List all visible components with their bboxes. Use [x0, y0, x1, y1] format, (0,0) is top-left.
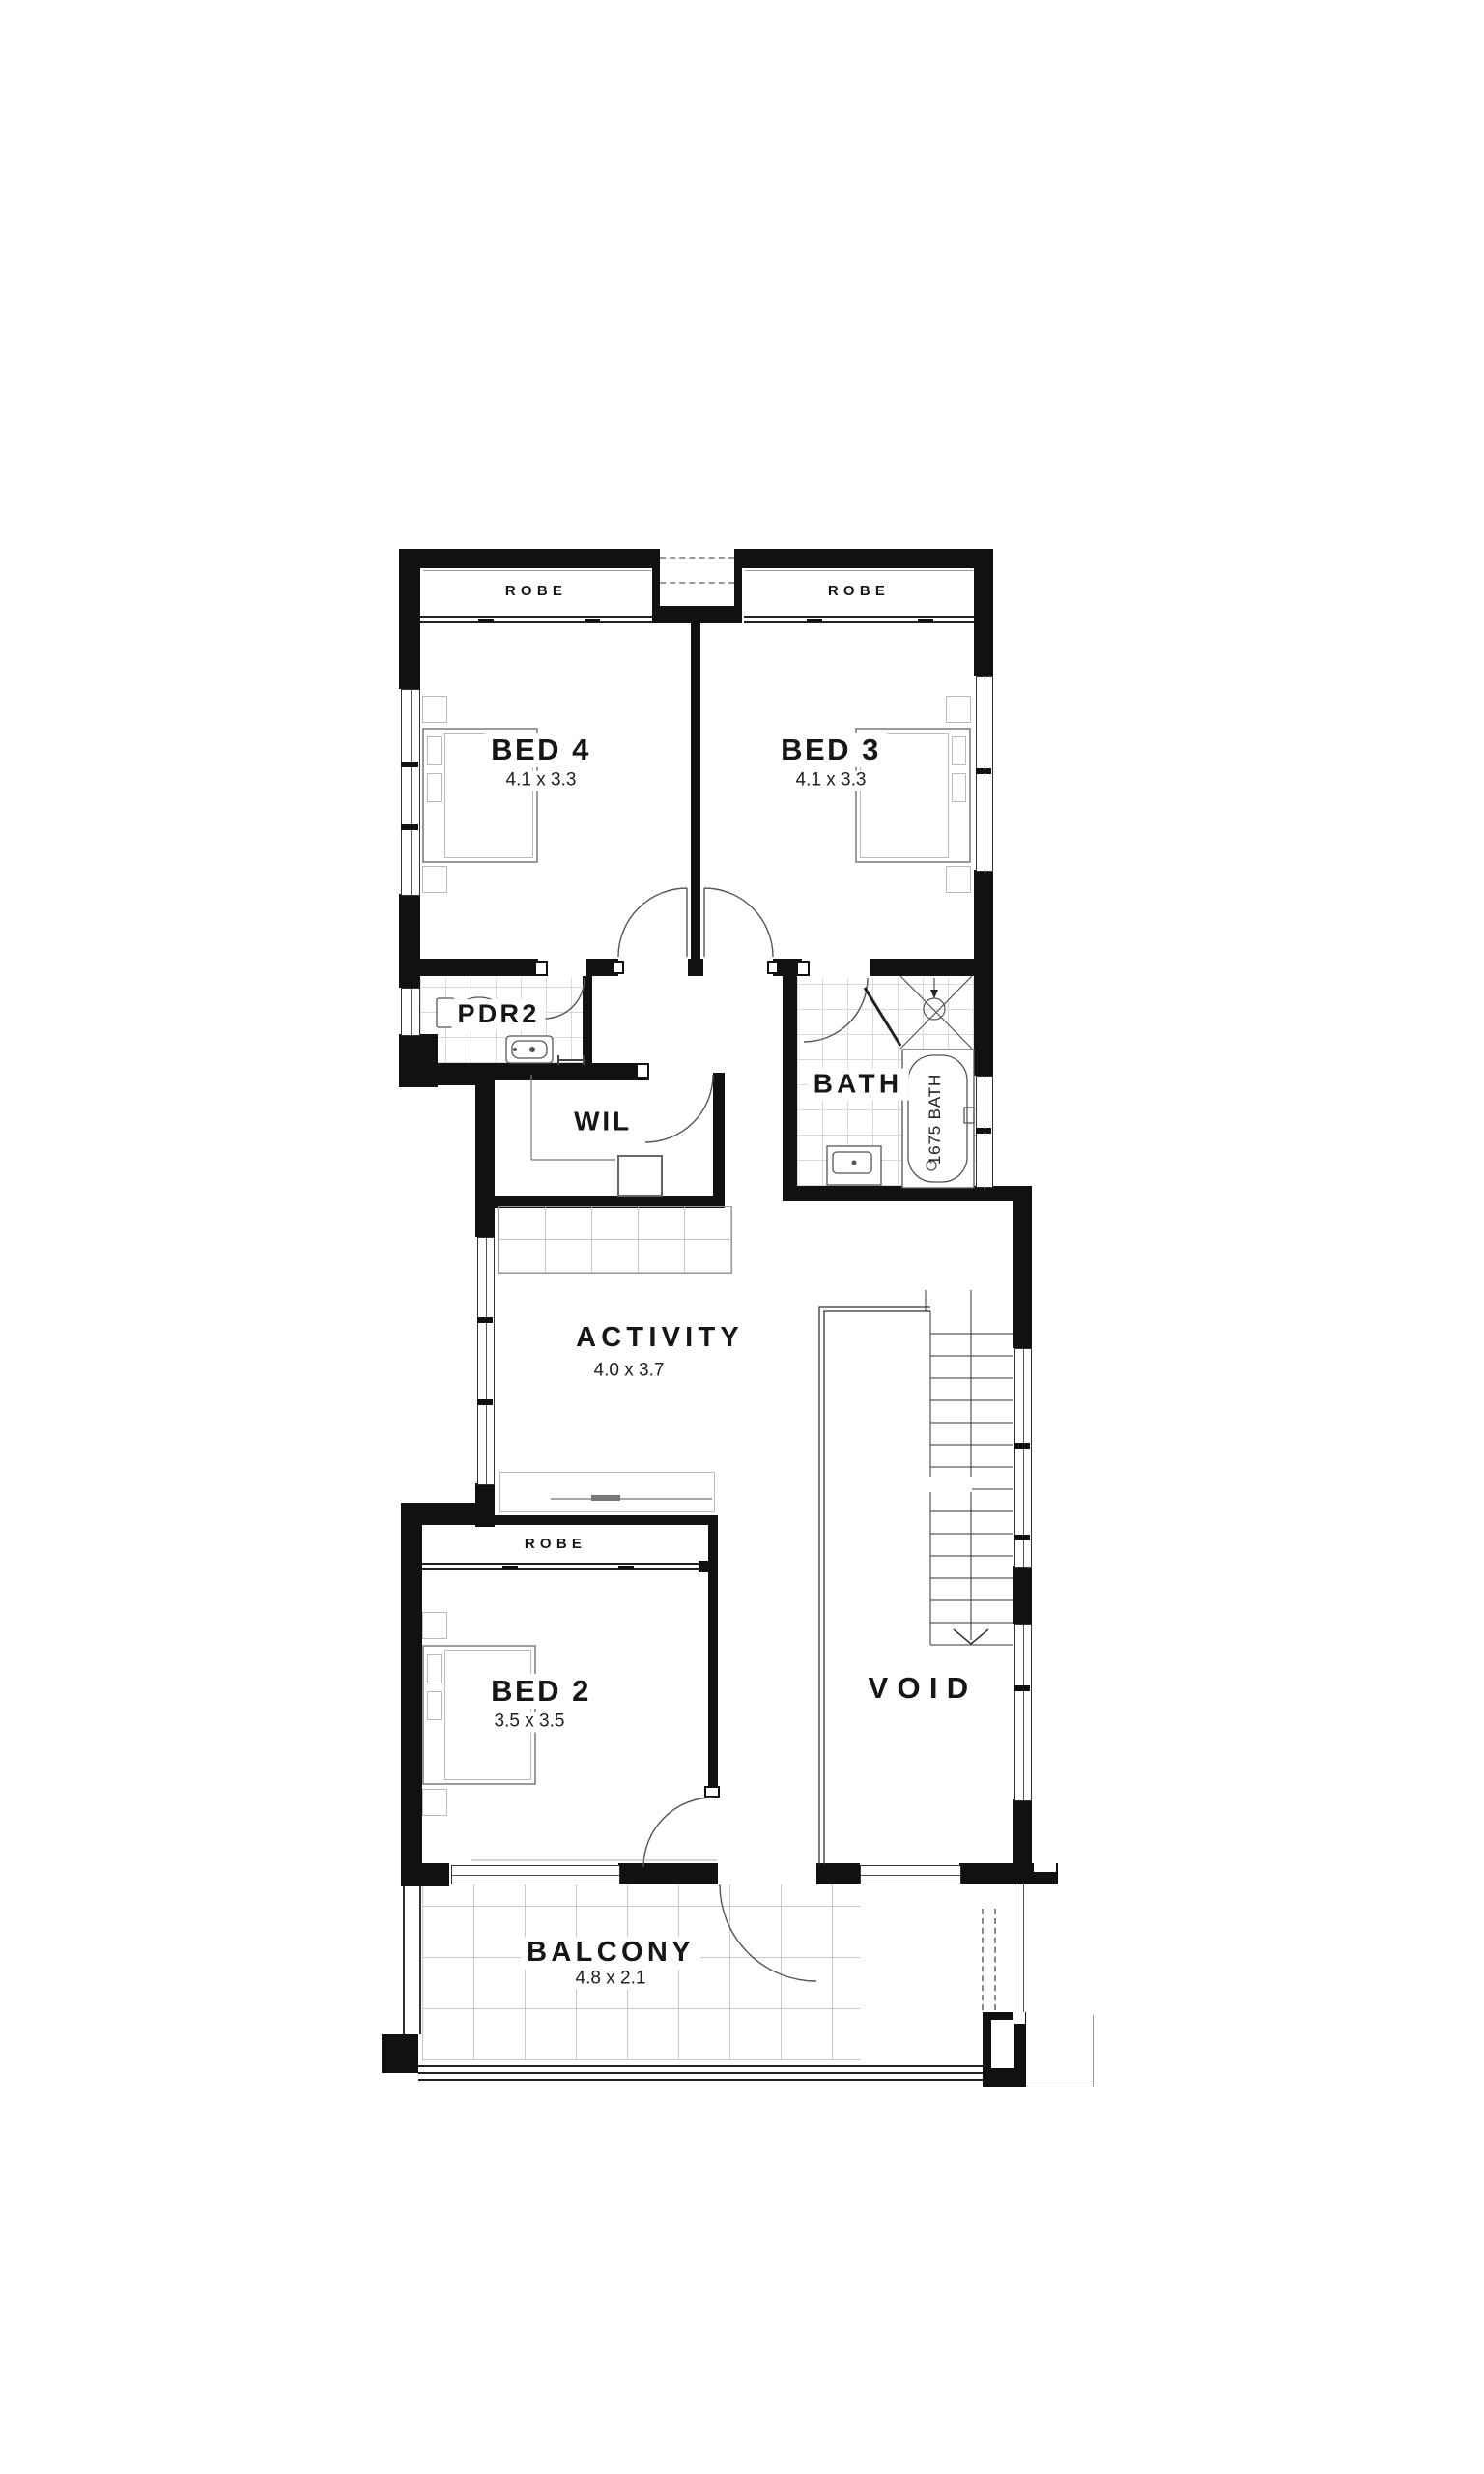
bed4-door-arc: [618, 888, 687, 957]
bed3-door-arc: [704, 888, 773, 957]
room-label-activity: ACTIVITY: [570, 1322, 750, 1355]
balcony-door-arc: [720, 1884, 816, 1981]
balcony-corner-post: [382, 2034, 418, 2073]
robe-label-bed3: ROBE: [822, 583, 896, 601]
balcony-left-railing: [403, 1886, 421, 2034]
pdr2-door-arc: [544, 978, 585, 1019]
roofline-dashed: [982, 1909, 984, 2010]
pdr2-basin-tap: [513, 1048, 517, 1051]
roofline-dashed: [994, 1909, 996, 2010]
bed2-door-arc: [643, 1798, 713, 1867]
room-dims-bed3: 4.1 x 3.3: [792, 771, 870, 791]
stair-handrail-break: [927, 1477, 972, 1492]
desk-item: [591, 1495, 620, 1501]
balcony-pier-notch: [1013, 2012, 1025, 2024]
bathtub-size-label: 1675 BATH: [926, 1074, 945, 1165]
plan-linework: [0, 0, 1484, 2474]
robe-label-bed2: ROBE: [519, 1536, 592, 1554]
stair-handrail-break: [974, 1401, 1013, 1415]
room-label-void: VOID: [863, 1671, 978, 1706]
shower-door: [865, 988, 900, 1046]
shower-rose: [924, 998, 945, 1020]
room-dims-balcony: 4.8 x 2.1: [572, 1970, 650, 1990]
robe-label-bed4: ROBE: [499, 583, 573, 601]
room-label-bed3: BED 3: [775, 733, 887, 767]
room-label-bed4: BED 4: [485, 733, 597, 767]
pdr2-basin-drain: [529, 1047, 535, 1052]
room-label-balcony: BALCONY: [521, 1937, 700, 1970]
void-edge-outer: [819, 1307, 930, 1865]
shower-arrow: [930, 990, 938, 998]
room-label-wil: WIL: [568, 1107, 638, 1138]
room-label-pdr2: PDR2: [452, 999, 546, 1030]
wil-cupboard: [618, 1156, 662, 1196]
room-label-bath: BATH: [808, 1069, 909, 1101]
room-label-bed2: BED 2: [485, 1674, 597, 1709]
room-dims-bed4: 4.1 x 3.3: [502, 771, 581, 791]
room-dims-bed2: 3.5 x 3.5: [491, 1712, 569, 1733]
bath-door-arc: [804, 978, 868, 1042]
floor-plan: ROBE ROBE BED 4 4.1 x 3.3 BED 3 4.1 x 3.…: [0, 0, 1484, 2474]
balcony-bottom-railing: [418, 2060, 1026, 2081]
wil-door-arc: [645, 1075, 713, 1142]
room-dims-activity: 4.0 x 3.7: [590, 1362, 669, 1382]
void-edge-inner: [824, 1311, 930, 1865]
balcony-pier-inner: [991, 2020, 1014, 2068]
pier-outline: [1093, 2015, 1094, 2087]
pier-outline: [1026, 2086, 1094, 2086]
vanity-tap: [852, 1161, 857, 1165]
